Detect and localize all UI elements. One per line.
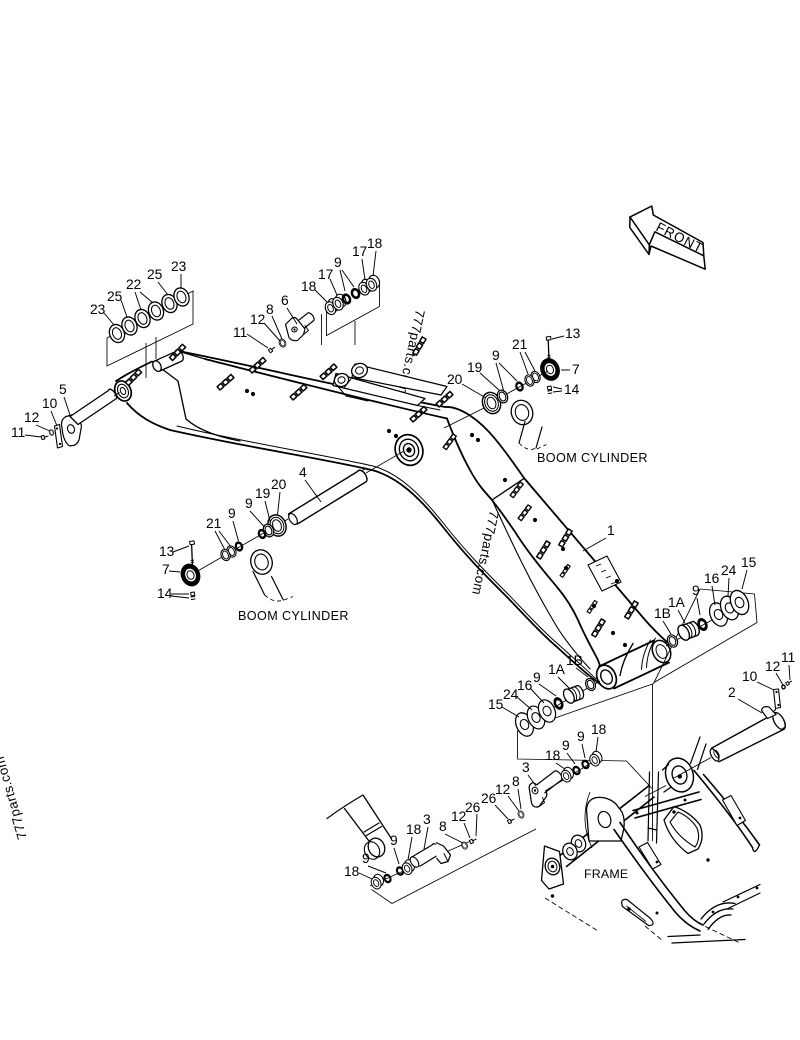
- svg-text:11: 11: [233, 325, 247, 340]
- svg-text:1: 1: [607, 523, 615, 538]
- svg-text:9: 9: [334, 255, 342, 270]
- svg-text:BOOM CYLINDER: BOOM CYLINDER: [238, 609, 349, 623]
- svg-text:4: 4: [299, 465, 307, 480]
- svg-text:10: 10: [42, 396, 58, 411]
- svg-text:21: 21: [206, 516, 221, 531]
- svg-text:12: 12: [24, 410, 39, 425]
- svg-text:9: 9: [362, 851, 370, 866]
- svg-text:18: 18: [367, 236, 383, 251]
- svg-text:8: 8: [512, 774, 520, 789]
- svg-text:18: 18: [545, 748, 561, 763]
- svg-text:9: 9: [692, 583, 700, 598]
- svg-text:9: 9: [562, 738, 570, 753]
- svg-text:23: 23: [171, 259, 187, 274]
- svg-text:16: 16: [704, 571, 720, 586]
- svg-text:1B: 1B: [566, 653, 583, 668]
- svg-text:1A: 1A: [668, 595, 686, 610]
- svg-text:18: 18: [344, 864, 360, 879]
- svg-text:9: 9: [492, 348, 500, 363]
- svg-text:20: 20: [447, 372, 463, 387]
- svg-text:7: 7: [572, 362, 580, 377]
- svg-text:15: 15: [741, 555, 757, 570]
- svg-text:5: 5: [59, 382, 67, 397]
- svg-text:17: 17: [318, 267, 333, 282]
- svg-text:18: 18: [301, 279, 317, 294]
- svg-text:20: 20: [271, 477, 287, 492]
- svg-text:24: 24: [721, 563, 737, 578]
- svg-text:13: 13: [565, 326, 581, 341]
- svg-text:15: 15: [488, 697, 504, 712]
- svg-text:3: 3: [423, 812, 431, 827]
- svg-text:9: 9: [228, 506, 236, 521]
- svg-text:14: 14: [564, 382, 580, 397]
- svg-text:7: 7: [162, 562, 170, 577]
- svg-text:1A: 1A: [548, 662, 566, 677]
- svg-text:21: 21: [512, 337, 527, 352]
- svg-text:9: 9: [577, 729, 585, 744]
- svg-text:FRAME: FRAME: [584, 867, 628, 881]
- svg-text:2: 2: [728, 685, 736, 700]
- svg-text:9: 9: [390, 833, 398, 848]
- svg-text:16: 16: [517, 678, 533, 693]
- svg-text:10: 10: [742, 669, 758, 684]
- svg-text:3: 3: [522, 760, 530, 775]
- svg-text:9: 9: [533, 670, 541, 685]
- svg-text:22: 22: [126, 277, 141, 292]
- svg-text:12: 12: [250, 312, 265, 327]
- svg-text:9: 9: [245, 496, 253, 511]
- svg-text:12: 12: [495, 782, 510, 797]
- svg-text:26: 26: [465, 800, 481, 815]
- svg-text:11: 11: [781, 650, 795, 665]
- svg-text:14: 14: [157, 586, 173, 601]
- svg-text:8: 8: [266, 302, 274, 317]
- svg-text:19: 19: [255, 486, 271, 501]
- svg-text:13: 13: [159, 544, 175, 559]
- svg-text:23: 23: [90, 302, 106, 317]
- svg-text:17: 17: [352, 244, 367, 259]
- svg-text:18: 18: [591, 722, 607, 737]
- svg-text:12: 12: [765, 659, 780, 674]
- svg-text:25: 25: [147, 267, 163, 282]
- svg-text:6: 6: [281, 293, 289, 308]
- svg-text:8: 8: [439, 819, 447, 834]
- svg-text:11: 11: [11, 425, 25, 440]
- svg-text:25: 25: [107, 289, 123, 304]
- svg-text:18: 18: [406, 822, 422, 837]
- svg-text:BOOM CYLINDER: BOOM CYLINDER: [537, 451, 648, 465]
